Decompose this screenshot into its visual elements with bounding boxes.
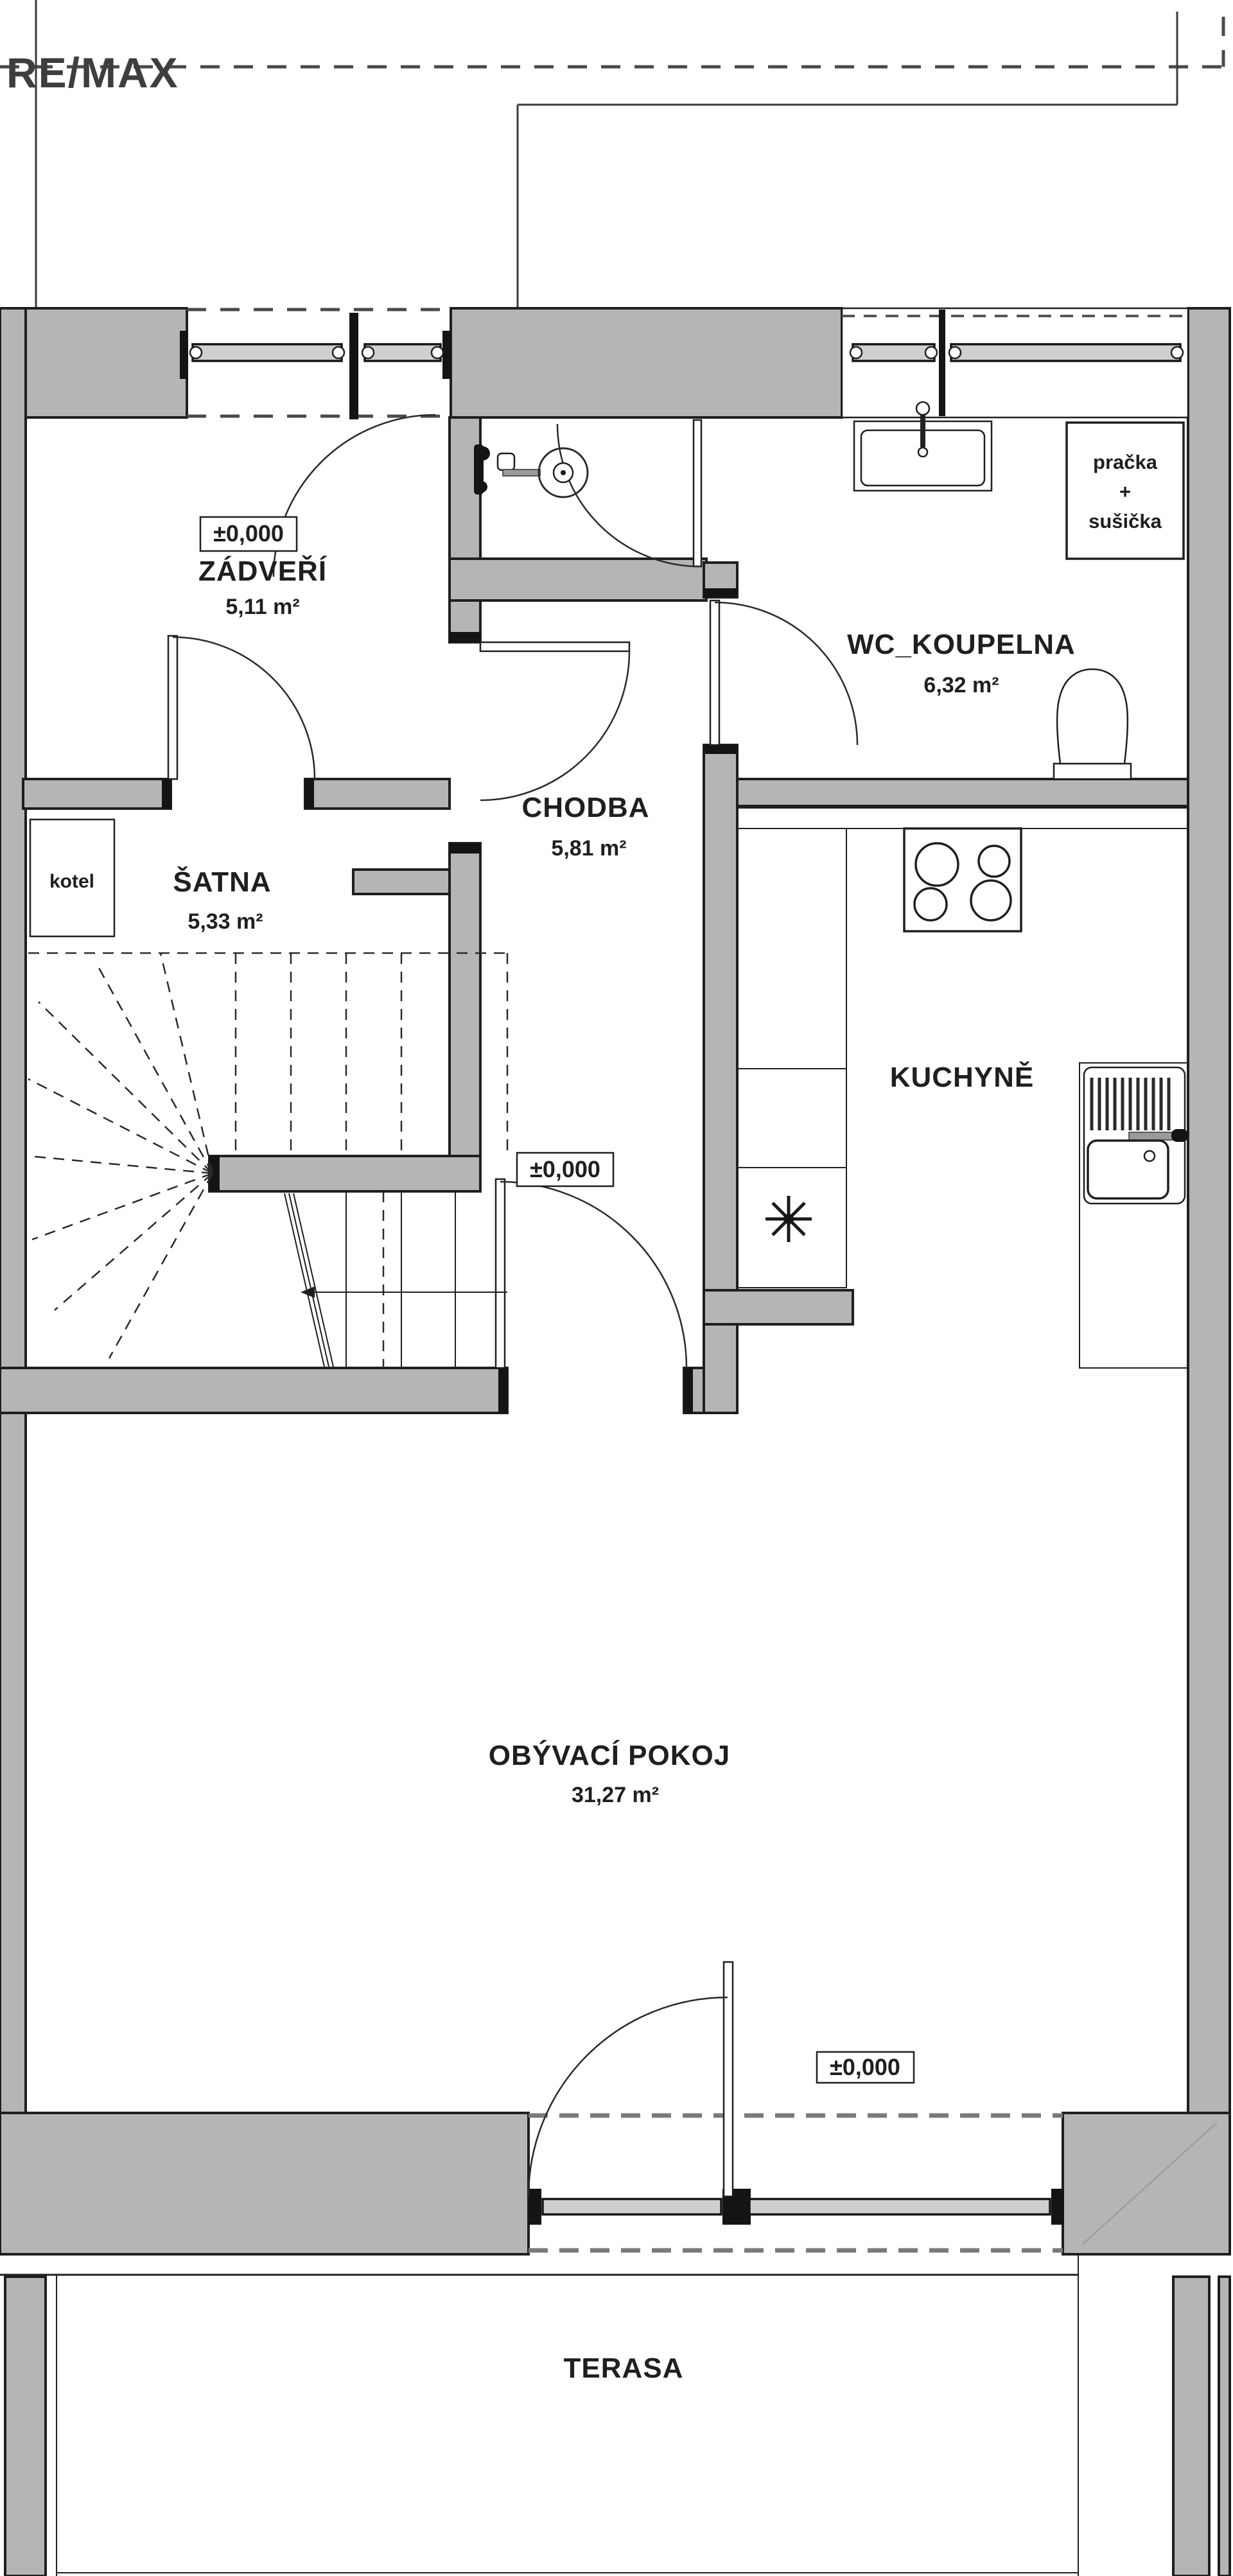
level-marker-living-room: ±0,000 xyxy=(817,2052,914,2083)
svg-text:+: + xyxy=(1119,480,1131,503)
room-label-terasa: TERASA xyxy=(564,2353,684,2384)
stair-break-line xyxy=(284,1193,333,1367)
floor-plan-drawing: RE/MAX xyxy=(0,0,1233,2576)
entry-to-closet-door xyxy=(168,636,315,779)
room-area-zadveri: 5,11 m² xyxy=(225,595,299,619)
wc-door xyxy=(710,600,857,745)
room-area-chodba: 5,81 m² xyxy=(551,836,626,861)
room-label-obyvaci-pokoj: OBÝVACÍ POKOJ xyxy=(489,1739,730,1771)
boiler-label: kotel xyxy=(49,871,94,892)
room-label-kuchyne: KUCHYNĚ xyxy=(890,1061,1035,1093)
floor-plan-page: RE/MAX xyxy=(0,0,1233,2576)
shower-icon xyxy=(474,444,588,497)
terrace xyxy=(0,2254,1230,2576)
level-marker-hall: ±0,000 xyxy=(517,1153,613,1186)
bathroom-window xyxy=(842,308,1188,417)
winder-steps xyxy=(28,953,213,1358)
room-area-obyvaci-pokoj: 31,27 m² xyxy=(572,1783,659,1807)
living-room-door xyxy=(496,1179,686,1368)
level-marker-entry: ±0,000 xyxy=(200,517,297,551)
toilet-icon xyxy=(1054,669,1131,779)
site-reference-lines xyxy=(0,0,1233,308)
room-label-wc-koupelna: WC_KOUPELNA xyxy=(847,629,1076,660)
svg-text:±0,000: ±0,000 xyxy=(213,520,284,547)
room-label-satna: ŠATNA xyxy=(173,865,271,898)
room-labels: ZÁDVEŘÍ 5,11 m² WC_KOUPELNA 6,32 m² CHOD… xyxy=(49,451,1162,2384)
svg-text:pračka: pračka xyxy=(1093,451,1158,473)
room-label-zadveri: ZÁDVEŘÍ xyxy=(198,555,328,587)
terrace-door-and-windows xyxy=(529,1962,1064,2250)
svg-text:±0,000: ±0,000 xyxy=(530,1156,600,1182)
remax-logo: RE/MAX xyxy=(6,49,179,96)
room-area-satna: 5,33 m² xyxy=(188,909,263,934)
fridge-snowflake-icon xyxy=(765,1196,812,1242)
svg-text:sušička: sušička xyxy=(1089,510,1162,532)
room-area-wc-koupelna: 6,32 m² xyxy=(923,673,999,697)
stove-icon xyxy=(904,828,1021,931)
room-label-chodba: CHODBA xyxy=(521,792,649,823)
hall-to-entry-door xyxy=(480,642,629,800)
svg-text:±0,000: ±0,000 xyxy=(830,2054,900,2080)
kitchen-sink-icon xyxy=(1084,1067,1188,1204)
shower-door xyxy=(557,420,701,566)
